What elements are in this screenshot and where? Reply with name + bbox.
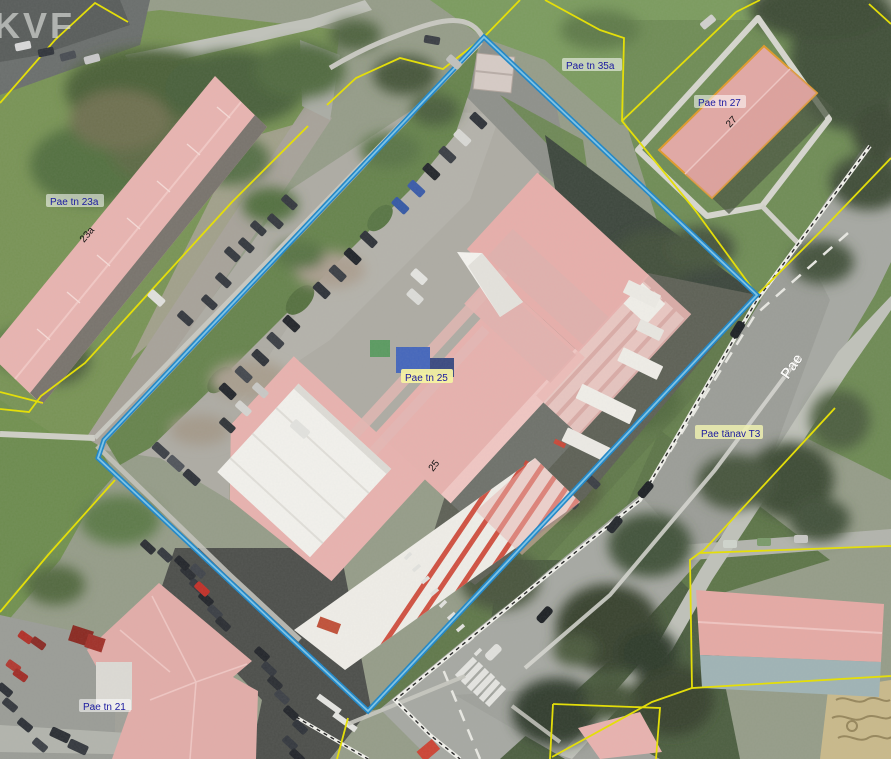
- svg-text:Pae tänav T3: Pae tänav T3: [701, 429, 761, 440]
- svg-text:Pae tn 27: Pae tn 27: [698, 98, 741, 109]
- svg-text:KVF: KVF: [0, 5, 75, 46]
- svg-text:Pae tn 35a: Pae tn 35a: [566, 61, 615, 72]
- svg-text:Pae tn 23a: Pae tn 23a: [50, 197, 99, 208]
- svg-text:Pae tn 21: Pae tn 21: [83, 702, 126, 713]
- svg-text:Pae tn 25: Pae tn 25: [405, 373, 448, 384]
